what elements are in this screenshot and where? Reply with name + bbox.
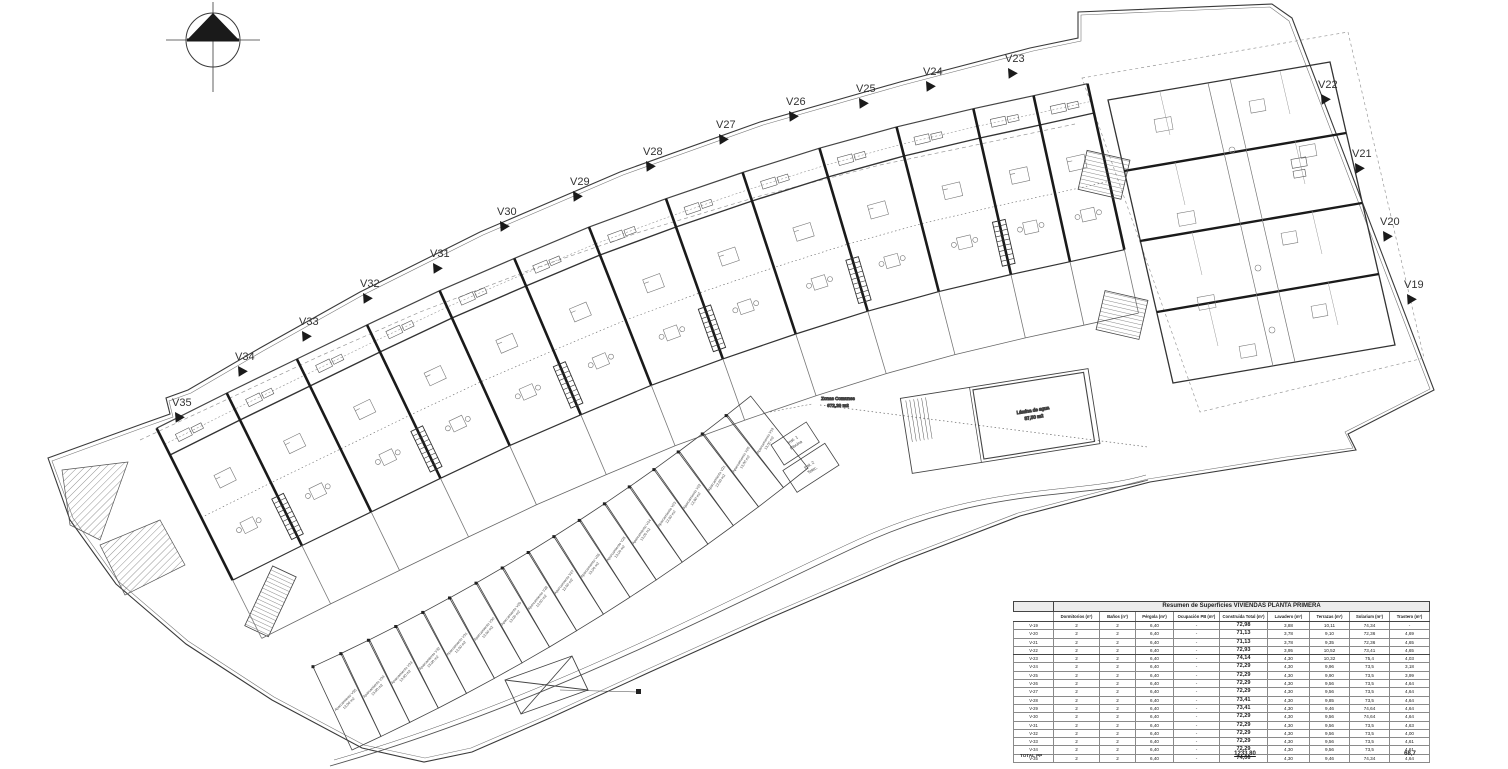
- cell-V-31-3: -: [1174, 721, 1220, 729]
- cell-V-30-2: 6,40: [1136, 713, 1174, 721]
- villa-label-V22: V22: [1318, 79, 1338, 91]
- cell-V-23-7: 75,4: [1350, 655, 1390, 663]
- cell-V-22-5: 3,95: [1268, 646, 1310, 654]
- row-label: V-24: [1014, 663, 1054, 671]
- cell-V-28-7: 73,5: [1350, 696, 1390, 704]
- cell-V-31-0: 2: [1054, 721, 1100, 729]
- cell-V-20-6: 9,10: [1310, 630, 1350, 638]
- cell-V-29-4: 73,41: [1220, 704, 1268, 712]
- cell-V-25-8: 3,99: [1390, 671, 1430, 679]
- row-label: V-31: [1014, 721, 1054, 729]
- cell-V-20-7: 72,36: [1350, 630, 1390, 638]
- entry-marker-icon: [360, 293, 374, 306]
- total-construida: 1233,80: [1222, 751, 1268, 757]
- cell-V-26-1: 2: [1100, 680, 1136, 688]
- cell-V-20-5: 3,78: [1268, 630, 1310, 638]
- row-label: V-26: [1014, 680, 1054, 688]
- cell-V-27-7: 73,5: [1350, 688, 1390, 696]
- cell-V-31-7: 73,5: [1350, 721, 1390, 729]
- cell-V-20-4: 71,13: [1220, 630, 1268, 638]
- cell-V-34-7: 73,5: [1350, 746, 1390, 754]
- entry-marker-icon: [1005, 68, 1019, 81]
- villa-label-V21: V21: [1352, 148, 1372, 160]
- cell-V-26-4: 72,29: [1220, 680, 1268, 688]
- cell-V-21-7: 72,36: [1350, 638, 1390, 646]
- column-header-3: Ocupación PB (m²): [1174, 612, 1220, 622]
- entry-marker-icon: [172, 412, 186, 425]
- cell-V-32-1: 2: [1100, 729, 1136, 737]
- cell-V-24-2: 6,40: [1136, 663, 1174, 671]
- cell-V-26-5: 4,30: [1268, 680, 1310, 688]
- row-label: V-30: [1014, 713, 1054, 721]
- table-row-V-24: V-24226,40-72,294,309,9673,53,18: [1014, 663, 1430, 671]
- cell-V-29-8: 4,64: [1390, 704, 1430, 712]
- table-title-row: Resumen de Superficies VIVIENDAS PLANTA …: [1014, 602, 1430, 612]
- villa-label-V28: V28: [643, 146, 663, 158]
- cell-V-28-6: 9,85: [1310, 696, 1350, 704]
- cell-V-29-2: 6,40: [1136, 704, 1174, 712]
- common-zone-area: 672,29 m2: [827, 403, 849, 408]
- cell-V-30-0: 2: [1054, 713, 1100, 721]
- table-row-V-31: V-31226,40-72,294,309,5673,54,63: [1014, 721, 1430, 729]
- cell-V-25-6: 9,90: [1310, 671, 1350, 679]
- cell-V-30-5: 4,30: [1268, 713, 1310, 721]
- cell-V-23-3: -: [1174, 655, 1220, 663]
- cell-V-28-8: 4,64: [1390, 696, 1430, 704]
- row-label: V-29: [1014, 704, 1054, 712]
- cell-V-19-7: 74,34: [1350, 622, 1390, 630]
- villa-label-V34: V34: [235, 351, 255, 363]
- common-zone-label: Zonas Comunes: [821, 396, 855, 401]
- table-row-V-20: V-20226,40-71,133,789,1072,364,69: [1014, 630, 1430, 638]
- table-row-V-30: V-30226,40-72,294,309,5674,644,64: [1014, 713, 1430, 721]
- row-label: V-28: [1014, 696, 1054, 704]
- villa-label-V24: V24: [923, 66, 943, 78]
- cell-V-23-8: 4,03: [1390, 655, 1430, 663]
- cell-V-20-0: 2: [1054, 630, 1100, 638]
- column-header-5: Lavadero (m²): [1268, 612, 1310, 622]
- cell-V-24-5: 4,30: [1268, 663, 1310, 671]
- cell-V-29-1: 2: [1100, 704, 1136, 712]
- cell-V-30-7: 74,64: [1350, 713, 1390, 721]
- villa-label-V35: V35: [172, 397, 192, 409]
- cell-V-29-5: 4,30: [1268, 704, 1310, 712]
- entry-marker-icon: [299, 331, 313, 344]
- cell-V-34-6: 9,56: [1310, 746, 1350, 754]
- cell-V-30-4: 72,29: [1220, 713, 1268, 721]
- setback-lines: [140, 32, 1424, 447]
- table-row-V-22: V-22226,40-72,933,9510,5273,414,65: [1014, 646, 1430, 654]
- villa-label-V20: V20: [1380, 216, 1400, 228]
- entry-marker-icon: [497, 221, 511, 234]
- cell-V-33-0: 2: [1054, 738, 1100, 746]
- cell-V-20-1: 2: [1100, 630, 1136, 638]
- entry-marker-icon: [716, 134, 730, 147]
- table-title: Resumen de Superficies VIVIENDAS PLANTA …: [1054, 602, 1430, 612]
- cell-V-32-8: 4,00: [1390, 729, 1430, 737]
- cell-V-27-1: 2: [1100, 688, 1136, 696]
- stair-right-block-icon: [1078, 150, 1148, 339]
- villa-label-V25: V25: [856, 83, 876, 95]
- cell-V-35-5: 4,30: [1268, 754, 1310, 762]
- column-header-4: Construida Total (m²): [1220, 612, 1268, 622]
- cell-V-21-4: 71,13: [1220, 638, 1268, 646]
- pool-area: Lámina de agua 87,50 m2 Zonas Comunes 67…: [770, 369, 1100, 474]
- cell-V-34-5: 4,30: [1268, 746, 1310, 754]
- cell-V-34-0: 2: [1054, 746, 1100, 754]
- cell-V-27-5: 4,30: [1268, 688, 1310, 696]
- cell-V-20-8: 4,69: [1390, 630, 1430, 638]
- total-pp-label: TOTAL PP: [1020, 753, 1042, 758]
- cell-V-33-3: -: [1174, 738, 1220, 746]
- cell-V-21-8: 4,65: [1390, 638, 1430, 646]
- cell-V-35-7: 74,34: [1350, 754, 1390, 762]
- entry-marker-icon: [856, 98, 870, 111]
- cell-V-23-0: 2: [1054, 655, 1100, 663]
- cell-V-28-2: 6,40: [1136, 696, 1174, 704]
- cell-V-29-3: -: [1174, 704, 1220, 712]
- row-label: V-27: [1014, 688, 1054, 696]
- cell-V-22-7: 73,41: [1350, 646, 1390, 654]
- cell-V-25-3: -: [1174, 671, 1220, 679]
- cell-V-23-6: 10,32: [1310, 655, 1350, 663]
- cell-V-32-5: 4,30: [1268, 729, 1310, 737]
- table-row-V-29: V-29226,40-73,414,309,4674,644,64: [1014, 704, 1430, 712]
- cell-V-24-6: 9,96: [1310, 663, 1350, 671]
- table-header-row: Dormitorios (nº)Baños (nº)Pérgola (m²)Oc…: [1014, 612, 1430, 622]
- column-header-0: Dormitorios (nº): [1054, 612, 1100, 622]
- cell-V-32-7: 73,5: [1350, 729, 1390, 737]
- cell-V-27-0: 2: [1054, 688, 1100, 696]
- cell-V-33-8: 4,61: [1390, 738, 1430, 746]
- right-block: [1078, 62, 1395, 383]
- villa-label-V29: V29: [570, 176, 590, 188]
- block-stairs: [272, 219, 1015, 539]
- table-row-V-19: V-19226,40-72,983,8810,1174,34-: [1014, 622, 1430, 630]
- cell-V-32-4: 72,29: [1220, 729, 1268, 737]
- cell-V-25-2: 6,40: [1136, 671, 1174, 679]
- cell-V-31-6: 9,56: [1310, 721, 1350, 729]
- row-label: V-21: [1014, 638, 1054, 646]
- column-header-6: Terrazas (m²): [1310, 612, 1350, 622]
- cell-V-19-0: 2: [1054, 622, 1100, 630]
- cell-V-26-2: 6,40: [1136, 680, 1174, 688]
- table-row-V-26: V-26226,40-72,294,309,5673,54,64: [1014, 680, 1430, 688]
- cell-V-21-2: 6,40: [1136, 638, 1174, 646]
- cell-V-25-7: 73,5: [1350, 671, 1390, 679]
- cell-V-27-4: 72,29: [1220, 688, 1268, 696]
- cell-V-26-3: -: [1174, 680, 1220, 688]
- cell-V-24-1: 2: [1100, 663, 1136, 671]
- villa-label-V33: V33: [299, 316, 319, 328]
- cell-V-26-7: 73,5: [1350, 680, 1390, 688]
- cell-V-21-5: 3,78: [1268, 638, 1310, 646]
- cell-V-30-3: -: [1174, 713, 1220, 721]
- cell-V-19-8: -: [1390, 622, 1430, 630]
- row-label: V-22: [1014, 646, 1054, 654]
- cell-V-21-1: 2: [1100, 638, 1136, 646]
- cell-V-32-3: -: [1174, 729, 1220, 737]
- column-header-1: Baños (nº): [1100, 612, 1136, 622]
- cell-V-26-6: 9,56: [1310, 680, 1350, 688]
- cell-V-25-1: 2: [1100, 671, 1136, 679]
- cell-V-33-1: 2: [1100, 738, 1136, 746]
- cell-V-19-5: 3,88: [1268, 622, 1310, 630]
- cell-V-31-4: 72,29: [1220, 721, 1268, 729]
- cell-V-24-3: -: [1174, 663, 1220, 671]
- entry-marker-icon: [1380, 231, 1394, 244]
- floor-plan-sheet: Lámina de agua 87,50 m2 Zonas Comunes 67…: [0, 0, 1508, 769]
- cell-V-31-2: 6,40: [1136, 721, 1174, 729]
- cell-V-32-6: 9,56: [1310, 729, 1350, 737]
- cell-V-33-4: 72,29: [1220, 738, 1268, 746]
- cell-V-19-4: 72,98: [1220, 622, 1268, 630]
- cell-V-30-8: 4,64: [1390, 713, 1430, 721]
- cell-V-23-1: 2: [1100, 655, 1136, 663]
- villa-label-V32: V32: [360, 278, 380, 290]
- cell-V-24-7: 73,5: [1350, 663, 1390, 671]
- cell-V-22-1: 2: [1100, 646, 1136, 654]
- entry-marker-icon: [923, 81, 937, 94]
- cell-V-27-8: 4,64: [1390, 688, 1430, 696]
- cell-V-30-1: 2: [1100, 713, 1136, 721]
- parking-row: Aparcamiento V3513,00 m2Aparcamiento V34…: [311, 396, 808, 750]
- entry-marker-icon: [1404, 294, 1418, 307]
- cell-V-22-6: 10,52: [1310, 646, 1350, 654]
- villa-label-V30: V30: [497, 206, 517, 218]
- cell-V-19-6: 10,11: [1310, 622, 1350, 630]
- column-header-8: Trastero (m²): [1390, 612, 1430, 622]
- table-row-V-23: V-23226,40-74,144,3010,3275,44,03: [1014, 655, 1430, 663]
- cell-V-31-8: 4,63: [1390, 721, 1430, 729]
- cell-V-20-3: -: [1174, 630, 1220, 638]
- planter-hatch: [62, 462, 296, 637]
- cell-V-21-6: 9,35: [1310, 638, 1350, 646]
- cell-V-23-4: 74,14: [1220, 655, 1268, 663]
- cell-V-33-2: 6,40: [1136, 738, 1174, 746]
- cell-V-35-1: 2: [1100, 754, 1136, 762]
- row-label: V-33: [1014, 738, 1054, 746]
- cell-V-33-5: 4,30: [1268, 738, 1310, 746]
- cell-V-22-0: 2: [1054, 646, 1100, 654]
- cell-V-28-3: -: [1174, 696, 1220, 704]
- table-row-V-25: V-25226,40-72,294,309,9073,53,99: [1014, 671, 1430, 679]
- north-arrow-icon: [166, 2, 260, 92]
- cell-V-34-3: -: [1174, 746, 1220, 754]
- cell-V-33-7: 73,5: [1350, 738, 1390, 746]
- cell-V-22-4: 72,93: [1220, 646, 1268, 654]
- cell-V-31-5: 4,30: [1268, 721, 1310, 729]
- entry-marker-icon: [235, 366, 249, 379]
- cell-V-21-0: 2: [1054, 638, 1100, 646]
- cell-V-35-6: 9,46: [1310, 754, 1350, 762]
- cell-V-35-3: -: [1174, 754, 1220, 762]
- villa-label-V31: V31: [430, 248, 450, 260]
- cell-V-28-0: 2: [1054, 696, 1100, 704]
- cell-V-20-2: 6,40: [1136, 630, 1174, 638]
- cell-V-34-2: 6,40: [1136, 746, 1174, 754]
- column-header-2: Pérgola (m²): [1136, 612, 1174, 622]
- cell-V-24-4: 72,29: [1220, 663, 1268, 671]
- cell-V-22-8: 4,65: [1390, 646, 1430, 654]
- cell-V-25-4: 72,29: [1220, 671, 1268, 679]
- table-row-V-32: V-32226,40-72,294,309,5673,54,00: [1014, 729, 1430, 737]
- table-row-V-27: V-27226,40-72,294,309,5673,54,64: [1014, 688, 1430, 696]
- cell-V-29-6: 9,46: [1310, 704, 1350, 712]
- cell-V-35-0: 2: [1054, 754, 1100, 762]
- table-row-V-28: V-28226,40-73,414,309,8573,54,64: [1014, 696, 1430, 704]
- cell-V-28-4: 73,41: [1220, 696, 1268, 704]
- pool-steps-icon: [906, 397, 932, 442]
- furniture-hints: [214, 154, 1103, 536]
- row-label: V-19: [1014, 622, 1054, 630]
- cell-V-29-7: 74,64: [1350, 704, 1390, 712]
- cell-V-28-1: 2: [1100, 696, 1136, 704]
- cell-V-23-2: 6,40: [1136, 655, 1174, 663]
- cell-V-28-5: 4,30: [1268, 696, 1310, 704]
- cell-V-25-0: 2: [1054, 671, 1100, 679]
- cell-V-24-8: 3,18: [1390, 663, 1430, 671]
- table-row-V-33: V-33226,40-72,294,309,5673,54,61: [1014, 738, 1430, 746]
- cell-V-19-3: -: [1174, 622, 1220, 630]
- stair-left-icon: [245, 566, 296, 637]
- cell-V-32-2: 6,40: [1136, 729, 1174, 737]
- cell-V-35-2: 6,40: [1136, 754, 1174, 762]
- pool-area-value: 87,50 m2: [1024, 413, 1044, 421]
- row-label: V-25: [1014, 671, 1054, 679]
- cell-V-29-0: 2: [1054, 704, 1100, 712]
- cell-V-24-0: 2: [1054, 663, 1100, 671]
- row-label: V-20: [1014, 630, 1054, 638]
- cell-V-33-6: 9,56: [1310, 738, 1350, 746]
- cell-V-26-8: 4,64: [1390, 680, 1430, 688]
- cell-V-25-5: 4,30: [1268, 671, 1310, 679]
- table-row-V-21: V-21226,40-71,133,789,3572,364,65: [1014, 638, 1430, 646]
- villa-label-V23: V23: [1005, 53, 1025, 65]
- cell-V-32-0: 2: [1054, 729, 1100, 737]
- cell-V-31-1: 2: [1100, 721, 1136, 729]
- row-label: V-32: [1014, 729, 1054, 737]
- cell-V-22-2: 6,40: [1136, 646, 1174, 654]
- row-label: V-23: [1014, 655, 1054, 663]
- cell-V-26-0: 2: [1054, 680, 1100, 688]
- cell-V-19-1: 2: [1100, 622, 1136, 630]
- surfaces-table: Resumen de Superficies VIVIENDAS PLANTA …: [1013, 601, 1433, 763]
- entry-marker-icon: [430, 263, 444, 276]
- pool-label: Lámina de agua: [1016, 405, 1050, 415]
- cell-V-23-5: 4,30: [1268, 655, 1310, 663]
- cell-V-19-2: 6,40: [1136, 622, 1174, 630]
- villa-label-V19: V19: [1404, 279, 1424, 291]
- villa-label-V27: V27: [716, 119, 736, 131]
- villa-label-V26: V26: [786, 96, 806, 108]
- cell-V-34-1: 2: [1100, 746, 1136, 754]
- cell-V-27-6: 9,56: [1310, 688, 1350, 696]
- cell-V-27-3: -: [1174, 688, 1220, 696]
- cell-V-27-2: 6,40: [1136, 688, 1174, 696]
- cell-V-22-3: -: [1174, 646, 1220, 654]
- villa-labels: V19V20V21V22V23V24V25V26V27V28V29V30V31V…: [172, 53, 1424, 425]
- cell-V-21-3: -: [1174, 638, 1220, 646]
- total-trastero: 68,7: [1390, 751, 1430, 757]
- cell-V-30-6: 9,56: [1310, 713, 1350, 721]
- column-header-7: Solarium (m²): [1350, 612, 1390, 622]
